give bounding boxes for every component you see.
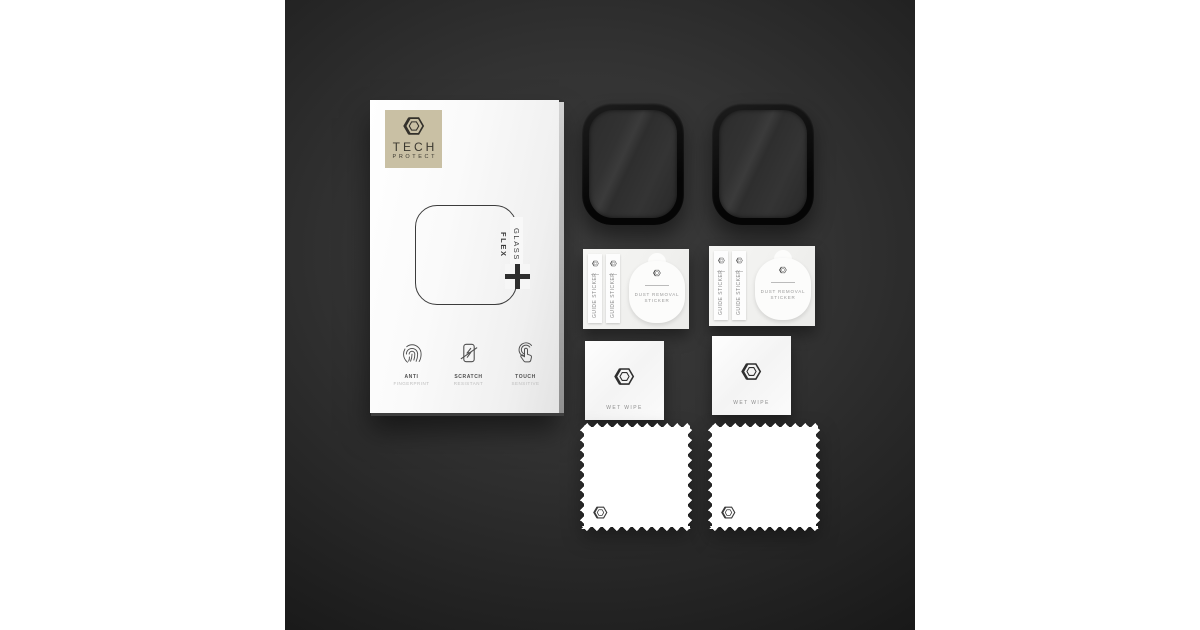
screen-protector-1 — [582, 103, 684, 225]
guide-sticker-strip: GUIDE STICKER — [714, 251, 728, 320]
touch-icon — [513, 340, 539, 366]
wet-wipe-sachet-2: WET WIPE — [712, 336, 791, 415]
hexnut-logo-icon — [593, 505, 608, 520]
hexnut-logo-icon — [779, 266, 787, 274]
hexnut-logo-icon — [741, 361, 762, 382]
divider — [771, 282, 795, 283]
feature-title: SCRATCH — [443, 374, 495, 380]
guide-sticker-strip: GUIDE STICKER — [606, 254, 620, 323]
guide-sticker-label: GUIDE STICKER — [588, 271, 602, 320]
dust-sticker-line2: STICKER — [629, 298, 685, 304]
wet-wipe-label: WET WIPE — [712, 400, 791, 406]
brand-subname: PROTECT — [388, 154, 442, 160]
dust-sticker-line2: STICKER — [755, 295, 811, 301]
glass-surface — [719, 110, 807, 218]
brand-name: TECH — [388, 142, 442, 152]
feature-title: ANTI — [386, 374, 438, 380]
microfiber-cloth-1 — [580, 423, 692, 531]
hexnut-logo-icon — [610, 260, 617, 267]
guide-sticker-strip: GUIDE STICKER — [588, 254, 602, 323]
dust-removal-sticker: DUST REMOVAL STICKER — [755, 250, 811, 322]
feature-subtitle: SENSITIVE — [500, 381, 552, 386]
hexnut-logo-icon — [592, 260, 599, 267]
feature-touch-sensitive: TOUCH SENSITIVE — [500, 340, 552, 386]
guide-sticker-strip: GUIDE STICKER — [732, 251, 746, 320]
feature-anti-fingerprint: ANTI FINGERPRINT — [386, 340, 438, 386]
right-white-panel — [915, 0, 1200, 630]
glass-label: GLASS — [512, 228, 521, 261]
product-photo-background: TECH PROTECT GLASS FLEX ANTI FINGERPRINT… — [285, 0, 915, 630]
flex-label: FLEX — [499, 232, 508, 258]
wet-wipe-label: WET WIPE — [585, 405, 664, 411]
plus-icon — [505, 264, 530, 289]
feature-scratch-resistant: SCRATCH RESISTANT — [443, 340, 495, 386]
hexnut-logo-icon — [653, 269, 661, 277]
glass-surface — [589, 110, 677, 218]
dust-removal-sticker: DUST REMOVAL STICKER — [629, 253, 685, 325]
scratch-icon — [456, 340, 482, 366]
feature-subtitle: FINGERPRINT — [386, 381, 438, 386]
product-shot: TECH PROTECT GLASS FLEX ANTI FINGERPRINT… — [0, 0, 1200, 630]
dust-sticker-label: DUST REMOVAL STICKER — [629, 292, 685, 304]
screen-protector-2 — [712, 103, 814, 225]
brand-label: TECH PROTECT — [385, 110, 442, 168]
retail-box: TECH PROTECT GLASS FLEX ANTI FINGERPRINT… — [370, 100, 559, 413]
feature-subtitle: RESISTANT — [443, 381, 495, 386]
wet-wipe-sachet-1: WET WIPE — [585, 341, 664, 420]
divider — [645, 285, 669, 286]
hexnut-logo-icon — [614, 366, 635, 387]
fingerprint-icon — [399, 340, 425, 366]
dust-sticker-label: DUST REMOVAL STICKER — [755, 289, 811, 301]
guide-sticker-label: GUIDE STICKER — [732, 268, 746, 317]
guide-sticker-label: GUIDE STICKER — [714, 268, 728, 317]
hexnut-logo-icon — [718, 257, 725, 264]
feature-row: ANTI FINGERPRINT SCRATCH RESISTANT TOUCH… — [378, 340, 559, 386]
hexnut-logo-icon — [736, 257, 743, 264]
feature-title: TOUCH — [500, 374, 552, 380]
left-white-panel — [0, 0, 285, 630]
sticker-body: DUST REMOVAL STICKER — [755, 258, 811, 320]
sticker-card-1: GUIDE STICKER GUIDE STICKER DUST REMOVAL… — [583, 249, 689, 329]
microfiber-cloth-2 — [708, 423, 820, 531]
hexnut-logo-icon — [721, 505, 736, 520]
sticker-card-2: GUIDE STICKER GUIDE STICKER DUST REMOVAL… — [709, 246, 815, 326]
sticker-body: DUST REMOVAL STICKER — [629, 261, 685, 323]
guide-sticker-label: GUIDE STICKER — [606, 271, 620, 320]
hexnut-logo-icon — [403, 115, 425, 137]
